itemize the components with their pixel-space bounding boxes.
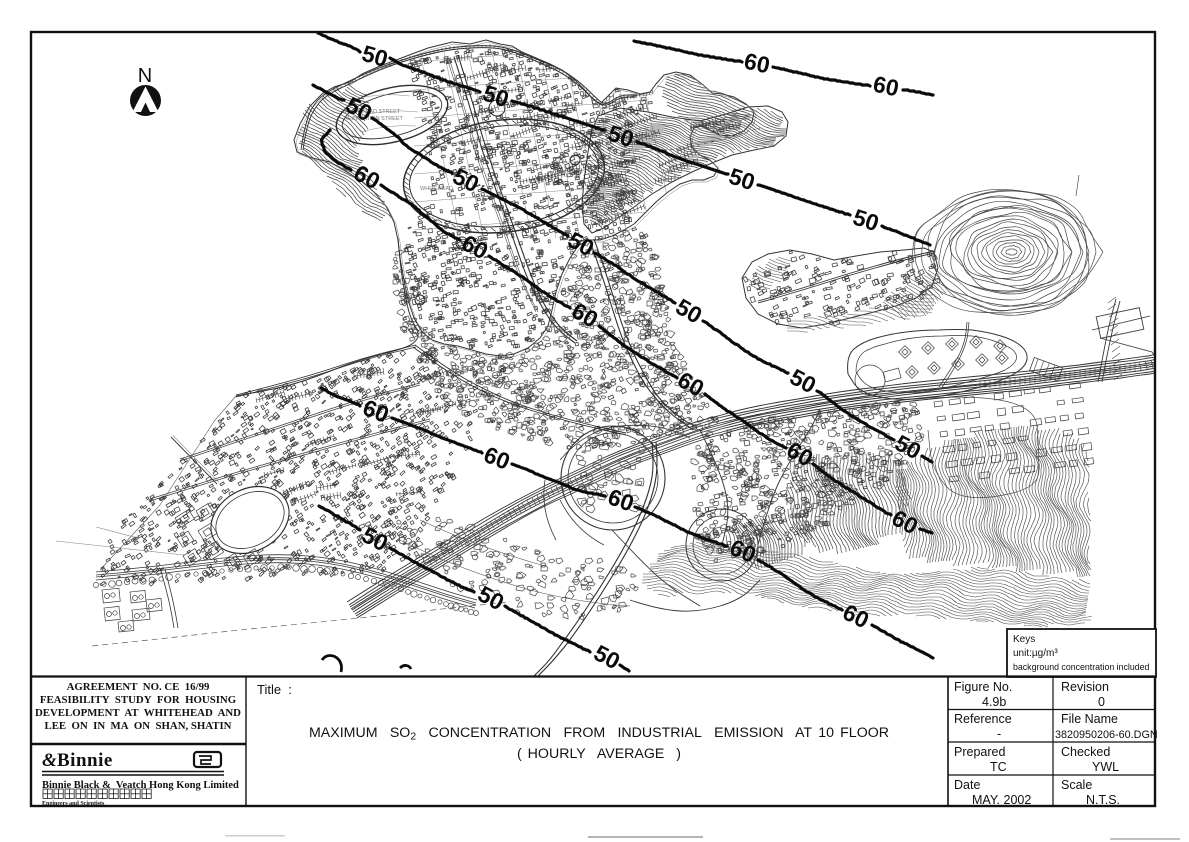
svg-text:File Name: File Name (1061, 712, 1118, 726)
svg-text:0: 0 (1098, 695, 1105, 709)
svg-text:Checked: Checked (1061, 745, 1110, 759)
svg-text:FEASIBILITY STUDY FOR HOUSI: FEASIBILITY STUDY FOR HOUSING (40, 694, 237, 706)
svg-text:Figure No.: Figure No. (954, 680, 1012, 694)
svg-text:-: - (997, 727, 1001, 741)
svg-text:MAXIMUM SO2 CONCENTRATION F: MAXIMUM SO2 CONCENTRATION FROM INDUSTRIA… (309, 725, 889, 743)
svg-text:&: & (42, 750, 57, 771)
svg-text:60: 60 (871, 71, 901, 102)
svg-text:( HOURLY AVERAGE ): ( HOURLY AVERAGE ) (517, 746, 681, 762)
svg-text:Prepared: Prepared (954, 745, 1005, 759)
svg-text:DEVELOPMENT AT WHITEHEAD AN: DEVELOPMENT AT WHITEHEAD AND (35, 707, 241, 719)
svg-text:Keys: Keys (1013, 634, 1035, 645)
svg-text:Engineers and Scientists: Engineers and Scientists (42, 801, 105, 807)
svg-text:Date: Date (954, 778, 980, 792)
svg-text:3820950206-60.DGN: 3820950206-60.DGN (1055, 729, 1158, 741)
svg-text:Title :: Title : (257, 682, 292, 697)
svg-text:Binnie: Binnie (57, 750, 113, 771)
svg-text:MAY. 2002: MAY. 2002 (972, 793, 1031, 807)
svg-text:AGREEMENT NO. CE 16/99: AGREEMENT NO. CE 16/99 (67, 681, 210, 693)
svg-text:background concentration inclu: background concentration included (1013, 662, 1150, 672)
svg-text:Scale: Scale (1061, 778, 1092, 792)
svg-text:TC: TC (990, 760, 1007, 774)
svg-text:YWL: YWL (1092, 760, 1119, 774)
svg-text:N: N (138, 65, 152, 87)
svg-text:60: 60 (742, 48, 772, 79)
svg-text:N.T.S.: N.T.S. (1086, 793, 1120, 807)
svg-text:Revision: Revision (1061, 680, 1109, 694)
svg-text:Reference: Reference (954, 712, 1012, 726)
svg-text:WHITEHEAD: WHITEHEAD (420, 186, 453, 192)
svg-text:unit:µg/m³: unit:µg/m³ (1013, 648, 1058, 659)
svg-text:4.9b: 4.9b (982, 695, 1006, 709)
svg-text:LEE ON IN MA ON SHAN, SHA: LEE ON IN MA ON SHAN, SHATIN (45, 720, 232, 732)
